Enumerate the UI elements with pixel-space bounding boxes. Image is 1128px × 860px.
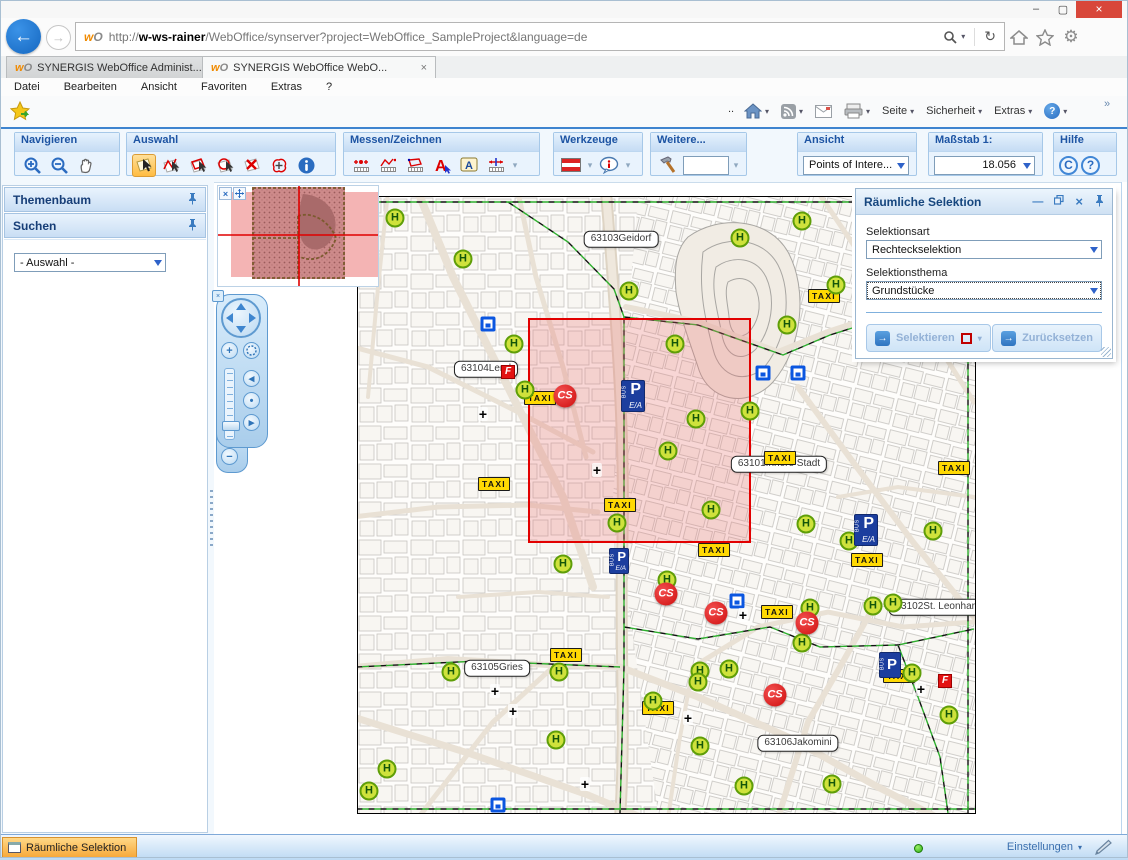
clear-selection-icon[interactable]	[240, 154, 264, 177]
search-icon[interactable]	[943, 30, 957, 44]
zoom-out-icon[interactable]	[47, 154, 71, 177]
back-button[interactable]: ←	[6, 19, 41, 54]
extras-menu[interactable]: Extras▾	[994, 105, 1032, 117]
chevron-down-icon	[154, 260, 162, 270]
rss-feed-icon[interactable]: ▾	[781, 104, 803, 119]
weboffice-favicon: wO	[84, 30, 103, 44]
massstab-select[interactable]: 18.056	[934, 156, 1035, 175]
rectangle-select-icon	[961, 333, 972, 344]
overview-map-graphic	[218, 186, 378, 286]
title-bar: – ▢ ×	[0, 0, 1128, 18]
help-menu[interactable]: ?▾	[1044, 103, 1067, 119]
flag-dropdown-icon[interactable]: ▾	[586, 160, 594, 171]
carsharing-marker: CS	[796, 612, 819, 635]
previous-extent-icon[interactable]: ◂	[243, 370, 260, 387]
zoom-in-button[interactable]: +	[221, 342, 238, 359]
home-icon[interactable]	[1008, 26, 1030, 48]
search-theme-select[interactable]: - Auswahl -	[14, 253, 166, 272]
chevron-down-icon	[1090, 247, 1098, 257]
bus-stop-marker: H	[797, 515, 816, 534]
carsharing-marker: CS	[705, 602, 728, 625]
weitere-dropdown-icon[interactable]: ▾	[732, 160, 740, 171]
poi-square-marker	[491, 798, 506, 813]
parking-garage-marker: BUSPE/A	[609, 548, 629, 574]
statusbar-item-raeumliche-selektion[interactable]: Räumliche Selektion	[2, 837, 137, 858]
taxi-marker: TAXI	[698, 543, 730, 557]
home-page-icon[interactable]: ▾	[744, 103, 769, 119]
svg-text:A: A	[465, 160, 473, 172]
draw-text-icon[interactable]: A	[430, 154, 454, 177]
measure-point-icon[interactable]	[349, 154, 373, 177]
church-cross-marker: +	[683, 711, 693, 725]
bus-stop-marker: H	[505, 335, 524, 354]
window-icon	[8, 842, 21, 853]
bus-stop-marker: H	[720, 660, 739, 679]
district-label: 63103Geidorf	[584, 231, 659, 248]
parking-garage-marker: BUSPE/A	[621, 380, 645, 412]
menu-extras[interactable]: Extras	[271, 81, 302, 93]
seite-menu[interactable]: Seite▾	[882, 105, 914, 117]
bus-stop-marker: H	[550, 663, 569, 682]
measure-coordinate-icon[interactable]	[484, 154, 508, 177]
taxi-marker: TAXI	[851, 553, 883, 567]
browser-navbar: ← → wO http://w-ws-rainer/WebOffice/syns…	[0, 18, 1128, 56]
tab-title: SYNERGIS WebOffice Administ...	[37, 62, 202, 74]
tab-close-icon[interactable]: ×	[413, 62, 427, 74]
menu-help[interactable]: ?	[326, 81, 332, 93]
right-strip	[1121, 182, 1128, 834]
bus-stop-marker: H	[659, 442, 678, 461]
tab-weboffice-client-active[interactable]: wO SYNERGIS WebOffice WebO... ×	[202, 56, 436, 79]
status-bar: Räumliche Selektion Einstellungen ▾	[0, 834, 1128, 860]
church-cross-marker: +	[490, 684, 500, 698]
bus-stop-marker: H	[547, 731, 566, 750]
copyright-icon[interactable]: C	[1059, 156, 1078, 175]
center-extent-icon[interactable]: •	[243, 392, 260, 409]
einstellungen-label: Einstellungen	[1007, 841, 1073, 853]
church-cross-marker: +	[738, 608, 748, 622]
menu-ansicht[interactable]: Ansicht	[141, 81, 177, 93]
poi-square-marker	[791, 366, 806, 381]
bus-stop-marker: H	[924, 522, 943, 541]
add-favorite-star-icon[interactable]	[10, 101, 32, 125]
weboffice-favicon: wO	[15, 62, 32, 74]
command-bar: .. ▾ ▾ ▾ Seite▾ Sicherheit▾ Extras▾ ?▾ »	[0, 96, 1128, 128]
bus-stop-marker: H	[864, 597, 883, 616]
selektionsthema-value: Grundstücke	[872, 285, 934, 297]
bus-stop-marker: H	[903, 664, 922, 683]
carsharing-marker: CS	[554, 385, 577, 408]
church-cross-marker: +	[580, 777, 590, 791]
bus-stop-marker: H	[442, 663, 461, 682]
toolbar-group-auswahl: Auswahl	[126, 132, 336, 176]
bus-stop-marker: H	[360, 782, 379, 801]
bus-stop-marker: H	[666, 335, 685, 354]
zuruecksetzen-button[interactable]: → Zurücksetzen	[992, 324, 1102, 352]
next-extent-icon[interactable]: ▸	[243, 414, 260, 431]
buffer-select-icon[interactable]	[267, 154, 291, 177]
church-cross-marker: +	[916, 682, 926, 696]
pan-left-icon[interactable]	[226, 313, 233, 323]
search-panel: - Auswahl -	[4, 239, 206, 285]
taxi-marker: TAXI	[938, 461, 970, 475]
group-title: Navigieren	[15, 133, 119, 152]
sicherheit-menu[interactable]: Sicherheit▾	[926, 105, 982, 117]
url-text[interactable]: http://w-ws-rainer/WebOffice/synserver?p…	[109, 30, 944, 44]
panel-restore-icon[interactable]	[1054, 195, 1064, 208]
tab-bar: wO SYNERGIS WebOffice Administ... wO SYN…	[0, 56, 1128, 78]
pin-icon[interactable]	[187, 218, 197, 234]
taxi-marker: TAXI	[761, 605, 793, 619]
panel-close-icon[interactable]: ×	[1075, 194, 1083, 209]
chevron-down-icon	[897, 163, 905, 173]
church-cross-marker: +	[478, 407, 488, 421]
select-circle-icon[interactable]	[213, 154, 237, 177]
panel-pin-icon[interactable]	[1094, 194, 1104, 210]
zuruecksetzen-label: Zurücksetzen	[1022, 332, 1093, 344]
carsharing-marker: CS	[655, 583, 678, 606]
settings-gear-icon[interactable]: ⚙	[1060, 26, 1082, 48]
selektionsthema-label: Selektionsthema	[866, 267, 1102, 279]
map-navigation-widget[interactable]: × + ◂ • ▸ −	[212, 290, 268, 476]
taxi-marker: TAXI	[764, 451, 796, 465]
pan-right-icon[interactable]	[249, 313, 256, 323]
overview-close-icon[interactable]: ×	[219, 187, 232, 200]
zoom-slider[interactable]	[224, 368, 235, 440]
select-line-icon[interactable]	[159, 154, 183, 177]
selektieren-label: Selektieren	[896, 332, 955, 344]
overview-move-icon[interactable]	[233, 187, 246, 200]
help-icon[interactable]: ?	[1081, 156, 1100, 175]
chevron-more-icon[interactable]: »	[1104, 98, 1110, 110]
group-title: Hilfe	[1054, 133, 1116, 152]
toolbar-group-hilfe: Hilfe C ?	[1053, 132, 1117, 176]
quick-tool-input[interactable]	[683, 156, 729, 175]
ansicht-select[interactable]: Points of Intere...	[803, 156, 909, 175]
toolbar-group-massstab: Maßstab 1: 18.056	[928, 132, 1043, 176]
church-cross-marker: +	[508, 704, 518, 718]
arrow-right-icon: →	[875, 331, 890, 346]
group-title: Werkzeuge	[554, 133, 642, 152]
group-title: Maßstab 1:	[929, 133, 1042, 152]
bus-stop-marker: H	[823, 775, 842, 794]
panel-minimize-icon[interactable]: —	[1032, 196, 1043, 208]
group-title: Auswahl	[127, 133, 335, 152]
parking-marker: BUSP	[879, 652, 901, 678]
full-extent-button[interactable]	[243, 342, 260, 359]
selektionsart-value: Rechteckselektion	[872, 244, 961, 256]
bus-stop-marker: H	[940, 706, 959, 725]
divider	[866, 312, 1102, 313]
toolbar-group-weitere: Weitere... ▾	[650, 132, 747, 176]
themenbaum-label: Themenbaum	[13, 193, 91, 207]
taxi-marker: TAXI	[478, 477, 510, 491]
forward-button[interactable]: →	[46, 25, 71, 50]
bus-stop-marker: H	[778, 316, 797, 335]
draw-label-icon[interactable]: A	[457, 154, 481, 177]
taxi-marker: TAXI	[604, 498, 636, 512]
pan-up-icon[interactable]	[236, 303, 246, 310]
panel-title: Räumliche Selektion	[864, 195, 981, 209]
parking-garage-marker: BUSPE/A	[854, 514, 878, 546]
bus-stop-marker: H	[793, 212, 812, 231]
group-title: Messen/Zeichnen	[344, 133, 539, 152]
toolbar-group-werkzeuge: Werkzeuge ▾ ▾	[553, 132, 643, 176]
bus-stop-marker: H	[741, 402, 760, 421]
taxi-marker: TAXI	[550, 648, 582, 662]
fire-station-marker: F	[501, 365, 515, 379]
maximize-button[interactable]: ▢	[1050, 0, 1076, 18]
sidebar: Themenbaum Suchen - Auswahl -	[2, 185, 208, 833]
minimize-button[interactable]: –	[1022, 0, 1050, 18]
measure-area-icon[interactable]	[403, 154, 427, 177]
bus-stop-marker: H	[644, 692, 663, 711]
toolbar-group-ansicht: Ansicht Points of Intere...	[797, 132, 917, 176]
fire-station-marker: F	[938, 674, 952, 688]
hammer-icon[interactable]	[656, 154, 680, 177]
zoom-slider-handle[interactable]	[222, 421, 240, 431]
weboffice-favicon: wO	[211, 62, 228, 74]
bus-stop-marker: H	[827, 276, 846, 295]
bus-stop-marker: H	[735, 777, 754, 796]
status-indicator-dot	[914, 844, 923, 853]
address-bar[interactable]: wO http://w-ws-rainer/WebOffice/synserve…	[75, 22, 1005, 51]
bus-stop-marker: H	[884, 594, 903, 613]
sidebar-item-themenbaum[interactable]: Themenbaum	[4, 187, 206, 212]
select-rectangle-icon[interactable]	[132, 154, 156, 177]
refresh-icon[interactable]: ↻	[984, 28, 996, 45]
bus-stop-marker: H	[689, 673, 708, 692]
church-cross-marker: +	[592, 463, 602, 477]
overview-map[interactable]: ×	[217, 185, 379, 287]
ansicht-value: Points of Intere...	[809, 159, 892, 171]
suchen-label: Suchen	[13, 219, 56, 233]
sidebar-item-suchen[interactable]: Suchen	[4, 213, 206, 238]
bus-stop-marker: H	[378, 760, 397, 779]
statusbar-item-label: Räumliche Selektion	[26, 842, 126, 854]
bus-stop-marker: H	[554, 555, 573, 574]
collapse-navigator-icon[interactable]: ×	[212, 290, 224, 302]
menu-bearbeiten[interactable]: Bearbeiten	[64, 81, 117, 93]
chevron-down-icon[interactable]: ▾	[978, 334, 982, 343]
flag-austria-icon[interactable]	[559, 154, 583, 177]
massstab-value: 18.056	[982, 159, 1016, 171]
pan-compass[interactable]	[221, 298, 261, 338]
menu-bar: Datei Bearbeiten Ansicht Favoriten Extra…	[0, 78, 1128, 96]
bus-stop-marker: H	[702, 501, 721, 520]
selektionsthema-select[interactable]: Grundstücke	[866, 281, 1102, 300]
select-polygon-icon[interactable]	[186, 154, 210, 177]
toolbar-overflow-dots[interactable]: ..	[728, 103, 734, 115]
menu-favoriten[interactable]: Favoriten	[201, 81, 247, 93]
pin-icon[interactable]	[187, 192, 197, 208]
selektieren-button[interactable]: → Selektieren ▾	[866, 324, 991, 352]
close-button[interactable]: ×	[1076, 0, 1122, 18]
tab-weboffice-administration[interactable]: wO SYNERGIS WebOffice Administ...	[6, 56, 218, 79]
pan-hand-icon[interactable]	[74, 154, 98, 177]
panel-resize-grip[interactable]	[1101, 347, 1111, 357]
zoom-in-icon[interactable]	[20, 154, 44, 177]
group-title: Ansicht	[798, 133, 916, 152]
bus-stop-marker: H	[731, 229, 750, 248]
maptip-balloon-icon[interactable]	[597, 154, 621, 177]
tab-title: SYNERGIS WebOffice WebO...	[233, 62, 387, 74]
map-area: 63103Geidorf63104Lend63101Innere Stadt63…	[214, 182, 1121, 835]
toolbar-group-navigieren: Navigieren	[14, 132, 120, 176]
bus-stop-marker: H	[454, 250, 473, 269]
splitter-grip[interactable]	[210, 490, 213, 548]
chevron-down-icon	[1023, 163, 1031, 173]
bus-stop-marker: H	[516, 381, 535, 400]
zoom-out-button[interactable]: −	[221, 448, 238, 465]
mail-icon[interactable]	[815, 105, 832, 118]
arrow-right-icon: →	[1001, 331, 1016, 346]
panel-title-bar[interactable]: Räumliche Selektion — ×	[856, 189, 1112, 215]
bus-stop-marker: H	[691, 737, 710, 756]
chevron-down-icon	[1090, 288, 1098, 298]
search-dropdown-icon[interactable]: ▾	[961, 32, 965, 41]
maptip-dropdown-icon[interactable]: ▾	[624, 160, 632, 171]
group-title: Weitere...	[651, 133, 746, 152]
einstellungen-menu[interactable]: Einstellungen ▾	[1007, 841, 1082, 853]
raeumliche-selektion-panel: Räumliche Selektion — × Selektionsart Re…	[855, 188, 1113, 359]
bus-stop-marker: H	[793, 634, 812, 653]
search-select-value: - Auswahl -	[20, 257, 74, 269]
selektionsart-label: Selektionsart	[866, 226, 1102, 238]
poi-square-marker	[756, 366, 771, 381]
bus-stop-marker: H	[620, 282, 639, 301]
measure-line-icon[interactable]	[376, 154, 400, 177]
bus-stop-marker: H	[687, 410, 706, 429]
menu-datei[interactable]: Datei	[14, 81, 40, 93]
district-label: 63105Gries	[464, 660, 530, 677]
carsharing-marker: CS	[764, 684, 787, 707]
edit-pencil-icon[interactable]	[1094, 839, 1114, 859]
measure-more-dropdown-icon[interactable]: ▾	[511, 160, 519, 171]
identify-info-icon[interactable]	[294, 154, 318, 177]
weboffice-app: Navigieren Auswahl	[0, 127, 1128, 858]
poi-square-marker	[481, 317, 496, 332]
pan-down-icon[interactable]	[236, 326, 246, 333]
selektionsart-select[interactable]: Rechteckselektion	[866, 240, 1102, 259]
print-icon[interactable]: ▾	[844, 103, 870, 119]
favorites-star-icon[interactable]	[1034, 26, 1056, 48]
bus-stop-marker: H	[608, 514, 627, 533]
toolbar-group-messen-zeichnen: Messen/Zeichnen A A ▾	[343, 132, 540, 176]
bus-stop-marker: H	[386, 209, 405, 228]
district-label: 63106Jakomini	[757, 735, 838, 752]
